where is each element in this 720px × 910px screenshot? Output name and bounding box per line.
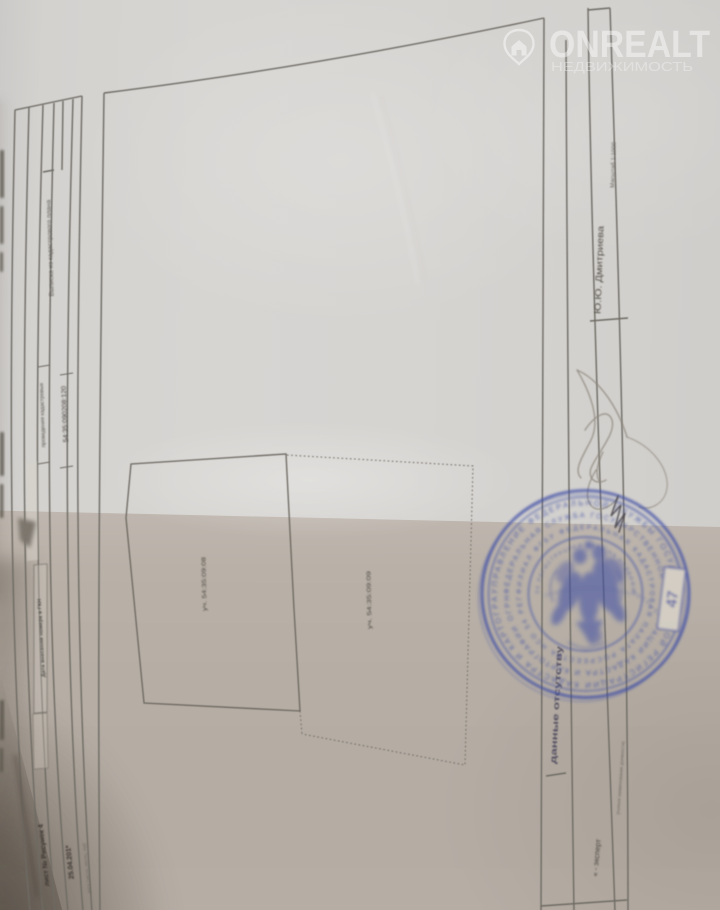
svg-text:уч. 54:35:09:09: уч. 54:35:09:09 xyxy=(366,570,373,629)
svg-text:25.04.201*: 25.04.201* xyxy=(65,845,76,880)
svg-text:Выписка из кадастрового плана: Выписка из кадастрового плана xyxy=(45,199,55,296)
svg-text:« - эксперт: « - эксперт xyxy=(590,838,602,877)
svg-text:проведения кадастровых: проведения кадастровых xyxy=(39,382,47,447)
svg-text:ФИЛИАЛ ФГБУ ФЕДЕРАЛЬНАЯ КАДАСТ: ФИЛИАЛ ФГБУ ФЕДЕРАЛЬНАЯ КАДАСТРОВАЯ ПАЛА… xyxy=(0,0,655,664)
svg-text:47: 47 xyxy=(663,590,682,609)
svg-text:НЕДВИЖИМОСТЬ: НЕДВИЖИМОСТЬ xyxy=(551,59,693,74)
svg-text:уч. 54:35:09:08: уч. 54:35:09:08 xyxy=(202,556,209,611)
svg-text:Масштаб 1:1000: Масштаб 1:1000 xyxy=(610,141,618,188)
svg-text:(полное наименование должности: (полное наименование должности) xyxy=(615,741,625,815)
svg-text:Ю.Ю. Дмитриева: Ю.Ю. Дмитриева xyxy=(592,226,605,314)
svg-text:дата (число, месяц, год): дата (число, месяц, год) xyxy=(81,842,91,893)
svg-text:54:35:090208:120: 54:35:090208:120 xyxy=(61,386,70,443)
